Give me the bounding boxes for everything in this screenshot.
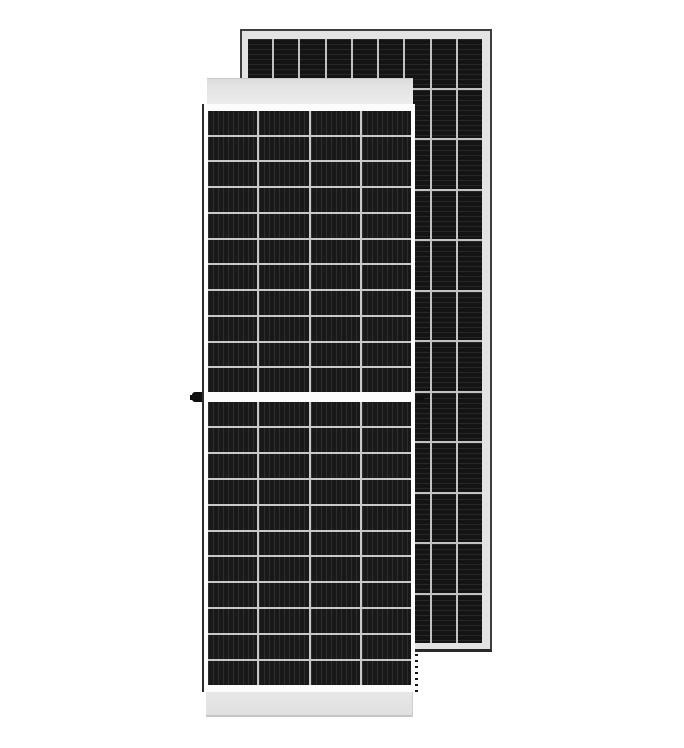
front-panel-solar-cell — [259, 343, 308, 367]
front-panel-solar-cell — [208, 428, 257, 452]
front-panel-solar-cell — [259, 368, 308, 392]
front-panel-solar-cell — [362, 428, 411, 452]
front-panel-solar-cell — [311, 188, 360, 212]
front-panel-solar-cell — [259, 137, 308, 161]
front-panel-solar-cell — [362, 317, 411, 341]
front-panel-solar-cell — [208, 188, 257, 212]
front-panel-solar-cell — [259, 162, 308, 186]
back-panel-solar-cell — [432, 544, 456, 593]
front-panel-solar-cell — [311, 265, 360, 289]
front-panel-solar-cell — [259, 454, 308, 478]
back-panel-solar-cell — [432, 39, 456, 88]
back-panel-solar-cell — [458, 90, 482, 139]
front-panel-solar-cell — [362, 137, 411, 161]
front-panel-solar-cell — [208, 214, 257, 238]
front-panel-solar-cell — [259, 557, 308, 581]
front-panel-solar-cell — [259, 583, 308, 607]
front-panel-solar-cell — [362, 402, 411, 426]
back-panel-solar-cell — [458, 443, 482, 492]
front-panel-solar-cell — [311, 137, 360, 161]
back-panel-bottom-shadow — [415, 650, 492, 652]
back-panel-solar-cell — [458, 292, 482, 341]
grounding-knob-left — [192, 392, 202, 402]
front-panel-solar-cell — [362, 214, 411, 238]
front-panel-solar-cell — [208, 609, 257, 633]
front-panel-solar-cell — [259, 111, 308, 135]
front-panel-solar-cell — [311, 428, 360, 452]
back-panel-solar-cell — [458, 544, 482, 593]
front-panel-solar-cell — [362, 368, 411, 392]
back-panel-solar-cell — [432, 494, 456, 543]
front-panel-solar-cell — [208, 454, 257, 478]
front-panel-solar-cell — [362, 480, 411, 504]
front-panel-solar-cell — [311, 162, 360, 186]
frame-serrated-edge — [415, 654, 418, 692]
front-panel-solar-cell — [311, 402, 360, 426]
front-panel-solar-cell — [259, 265, 308, 289]
front-panel-solar-cell — [259, 291, 308, 315]
back-panel-solar-cell — [432, 342, 456, 391]
front-panel-solar-cell — [362, 661, 411, 685]
front-panel-solar-cell — [208, 506, 257, 530]
front-panel-solar-cell — [311, 291, 360, 315]
front-panel-solar-cell — [311, 368, 360, 392]
front-panel-solar-cell — [311, 111, 360, 135]
front-panel-solar-cell — [311, 635, 360, 659]
front-panel-solar-cell — [311, 506, 360, 530]
front-panel-solar-cell — [311, 317, 360, 341]
front-panel-solar-cell — [259, 317, 308, 341]
front-panel-solar-cell — [208, 661, 257, 685]
front-panel-solar-cell — [311, 609, 360, 633]
back-panel-solar-cell — [432, 595, 456, 644]
back-panel-solar-cell — [432, 90, 456, 139]
front-panel-bottom-frame-rail — [206, 692, 413, 717]
front-panel-solar-cell — [362, 240, 411, 264]
front-panel-solar-cell — [362, 583, 411, 607]
front-panel-solar-cell — [208, 137, 257, 161]
front-panel-solar-cell — [362, 609, 411, 633]
front-panel-solar-cell — [208, 480, 257, 504]
back-panel-solar-cell — [432, 443, 456, 492]
front-panel-solar-cell — [311, 240, 360, 264]
grounding-knob-right — [416, 396, 424, 401]
back-panel-solar-cell — [432, 191, 456, 240]
front-panel-solar-cell — [259, 402, 308, 426]
front-panel-solar-cell — [208, 291, 257, 315]
front-panel-solar-cell — [362, 532, 411, 556]
back-panel-solar-cell — [458, 140, 482, 189]
front-panel-solar-cell — [311, 532, 360, 556]
front-panel-solar-cell — [208, 368, 257, 392]
front-panel-solar-cell — [259, 635, 308, 659]
front-panel-solar-cell — [362, 635, 411, 659]
back-panel-solar-cell — [458, 241, 482, 290]
front-panel-solar-cell — [259, 506, 308, 530]
front-panel-solar-cell — [259, 188, 308, 212]
front-panel-solar-cell — [208, 240, 257, 264]
front-panel-lower-cell-grid — [208, 402, 411, 685]
front-panel-solar-cell — [311, 454, 360, 478]
front-panel-solar-cell — [208, 402, 257, 426]
front-panel-solar-cell — [208, 111, 257, 135]
front-panel-solar-cell — [362, 506, 411, 530]
front-panel-solar-cell — [208, 317, 257, 341]
front-panel-solar-cell — [208, 265, 257, 289]
front-panel-upper-cell-grid — [208, 111, 411, 392]
front-panel-solar-cell — [259, 240, 308, 264]
front-panel-solar-cell — [208, 635, 257, 659]
front-panel-solar-cell — [311, 557, 360, 581]
back-panel-solar-cell — [432, 140, 456, 189]
front-panel-solar-cell — [362, 111, 411, 135]
back-panel-solar-cell — [432, 292, 456, 341]
back-panel-solar-cell — [458, 494, 482, 543]
front-panel-solar-cell — [208, 532, 257, 556]
back-panel-solar-cell — [458, 342, 482, 391]
front-panel-solar-cell — [208, 343, 257, 367]
front-panel-solar-cell — [311, 214, 360, 238]
front-panel-solar-cell — [362, 291, 411, 315]
back-panel-solar-cell — [458, 595, 482, 644]
front-panel-solar-cell — [362, 188, 411, 212]
front-panel-solar-cell — [362, 343, 411, 367]
back-panel-solar-cell — [458, 393, 482, 442]
front-panel-solar-cell — [311, 661, 360, 685]
front-panel-solar-cell — [259, 609, 308, 633]
front-panel-solar-cell — [311, 583, 360, 607]
front-panel-solar-cell — [311, 480, 360, 504]
back-panel-solar-cell — [458, 39, 482, 88]
front-panel-solar-cell — [259, 428, 308, 452]
solar-panels-product-photo — [0, 0, 684, 748]
front-panel-solar-cell — [362, 265, 411, 289]
front-panel-face — [202, 104, 415, 692]
front-panel-solar-cell — [259, 214, 308, 238]
back-panel-solar-cell — [432, 393, 456, 442]
front-panel-solar-cell — [362, 557, 411, 581]
front-panel-top-frame-rail — [207, 78, 413, 105]
front-panel-solar-cell — [208, 557, 257, 581]
front-panel-solar-cell — [311, 343, 360, 367]
front-panel-solar-cell — [259, 532, 308, 556]
front-panel-solar-cell — [259, 480, 308, 504]
front-panel-solar-cell — [362, 162, 411, 186]
front-panel-solar-cell — [208, 162, 257, 186]
back-panel-solar-cell — [432, 241, 456, 290]
front-panel-solar-cell — [362, 454, 411, 478]
back-panel-solar-cell — [458, 191, 482, 240]
front-panel-solar-cell — [259, 661, 308, 685]
front-panel-solar-cell — [208, 583, 257, 607]
